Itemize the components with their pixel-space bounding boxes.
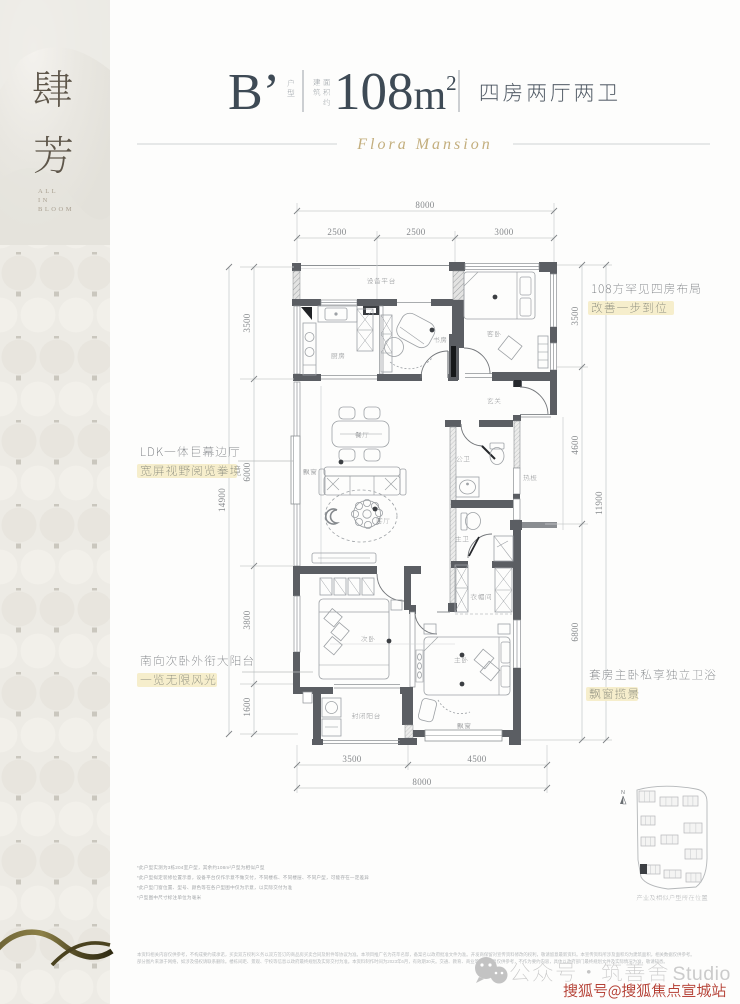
- svg-text:108m2: 108m2: [334, 63, 457, 121]
- svg-text:6000: 6000: [242, 462, 252, 481]
- svg-text:4500: 4500: [467, 754, 486, 764]
- svg-text:14900: 14900: [217, 488, 227, 512]
- svg-text:BLOOM: BLOOM: [38, 206, 74, 213]
- svg-text:3500: 3500: [342, 754, 361, 764]
- svg-text:1600: 1600: [242, 697, 252, 716]
- svg-text:*户型图中尺寸标注单位为毫米: *户型图中尺寸标注单位为毫米: [137, 894, 202, 901]
- svg-text:*此户型实测为3栋204室户型，其余约108m²户型为相似户: *此户型实测为3栋204室户型，其余约108m²户型为相似户型: [137, 864, 265, 871]
- svg-text:11900: 11900: [594, 491, 604, 515]
- svg-text:B’: B’: [228, 64, 280, 121]
- svg-text:*此户型门窗位置、型号、颜色等在各户型图中仅为示意，以实际交: *此户型门窗位置、型号、颜色等在各户型图中仅为示意，以实际交付为准: [137, 884, 293, 891]
- svg-text:2500: 2500: [327, 227, 346, 237]
- svg-text:Studio: Studio: [673, 963, 731, 985]
- svg-text:Flora Mansion: Flora Mansion: [356, 136, 492, 153]
- svg-text:6800: 6800: [570, 622, 580, 641]
- svg-text:8000: 8000: [415, 200, 434, 210]
- svg-text:4600: 4600: [570, 435, 580, 454]
- svg-text:本资料相关内容仅供参考，不构成要约或承诺，买卖双方权利义务以: 本资料相关内容仅供参考，不构成要约或承诺，买卖双方权利义务以双方签订的商品房买卖…: [137, 951, 695, 958]
- svg-text:*此户型拟定装修位置示意，设备平台仅作示意不做交付，不同楼栋: *此户型拟定装修位置示意，设备平台仅作示意不做交付，不同楼栋、不同楼层、不同户型…: [137, 874, 369, 881]
- svg-text:2500: 2500: [406, 227, 425, 237]
- svg-text:8000: 8000: [412, 777, 431, 787]
- svg-text:3800: 3800: [242, 610, 252, 629]
- svg-text:ALL: ALL: [38, 188, 58, 195]
- svg-text:3500: 3500: [570, 306, 580, 325]
- svg-text:部分图片来源于网络，如涉及侵权请联系删除。楼栋间距、景观、学: 部分图片来源于网络，如涉及侵权请联系删除。楼栋间距、景观、学校等信息以政府最终规…: [137, 958, 668, 965]
- svg-text:3500: 3500: [242, 313, 252, 332]
- svg-text:N: N: [621, 790, 625, 796]
- svg-text:3000: 3000: [494, 227, 513, 237]
- svg-text:IN: IN: [38, 197, 50, 204]
